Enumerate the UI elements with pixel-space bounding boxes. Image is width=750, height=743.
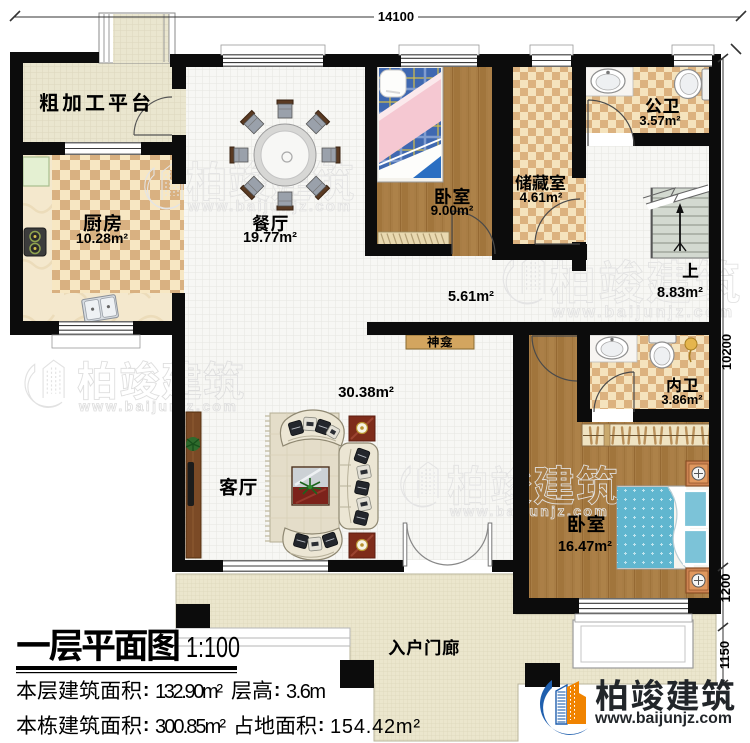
- svg-text:3.86m²: 3.86m²: [661, 392, 703, 407]
- svg-text::: :: [143, 680, 149, 701]
- svg-text:154.42m²: 154.42m²: [330, 716, 420, 738]
- svg-text:3.6m: 3.6m: [286, 681, 326, 703]
- svg-text:www.baijunjz.com: www.baijunjz.com: [449, 503, 609, 519]
- svg-text::: :: [318, 715, 324, 736]
- svg-text:www.baijunjz.com: www.baijunjz.com: [594, 710, 732, 727]
- svg-text:9.00m²: 9.00m²: [431, 203, 474, 218]
- svg-text::: :: [143, 715, 149, 736]
- svg-text:3.57m²: 3.57m²: [639, 113, 681, 128]
- svg-text:www.baijunjz.com: www.baijunjz.com: [78, 398, 238, 414]
- svg-text:16.47m²: 16.47m²: [558, 539, 612, 555]
- svg-text:8.83m²: 8.83m²: [657, 285, 703, 301]
- svg-text:300.85m²: 300.85m²: [155, 716, 226, 738]
- svg-text:19.77m²: 19.77m²: [243, 230, 297, 246]
- svg-text:10.28m²: 10.28m²: [76, 230, 128, 246]
- svg-text:4.61m²: 4.61m²: [520, 190, 563, 205]
- svg-text:1:100: 1:100: [186, 632, 240, 664]
- svg-text:30.38m²: 30.38m²: [338, 384, 394, 401]
- svg-text:10200: 10200: [719, 334, 734, 370]
- svg-text::: :: [274, 680, 280, 701]
- svg-text:www.baijunjz.com: www.baijunjz.com: [551, 304, 735, 321]
- svg-text:5.61m²: 5.61m²: [448, 289, 494, 305]
- svg-text:www.baijunjz.com: www.baijunjz.com: [187, 198, 353, 215]
- svg-text:132.90m²: 132.90m²: [155, 681, 223, 703]
- svg-text:1150: 1150: [717, 641, 732, 669]
- svg-text:14100: 14100: [378, 9, 414, 24]
- svg-text:1200: 1200: [718, 574, 733, 603]
